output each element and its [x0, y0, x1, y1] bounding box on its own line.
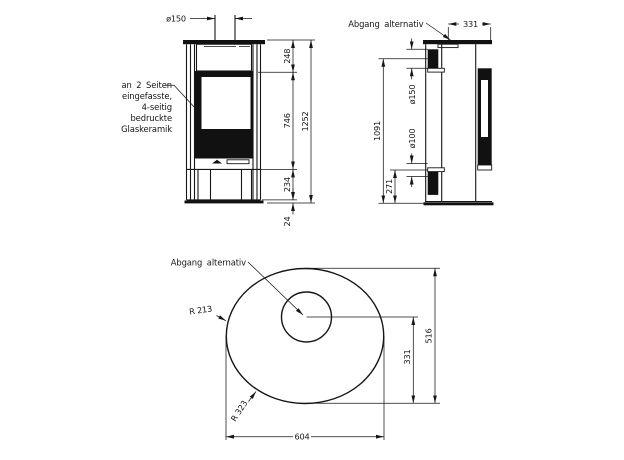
dim-text-1252: 1252 [300, 111, 310, 131]
side-outlet-label: Abgang alternativ [348, 19, 423, 29]
side-base-plinth [424, 202, 494, 205]
side-glass-band-cap [478, 165, 492, 170]
dim-text-248: 248 [282, 49, 292, 64]
side-top-plate [423, 40, 492, 44]
top-outlet-cap [438, 44, 458, 47]
dim-text-d150: ø150 [407, 85, 417, 105]
top-plate [183, 40, 265, 44]
ash-lip [227, 160, 249, 164]
glass-note-line-4: bedruckte [130, 113, 172, 123]
dim-text-746: 746 [282, 113, 292, 128]
dim-text-r323: R 323 [229, 399, 250, 424]
dim-text-604: 604 [294, 431, 309, 441]
dim-text-r213: R 213 [189, 303, 213, 316]
front-view: an 2 Seiten eingefasste, 4-seitig bedruc… [121, 14, 315, 227]
rear-air-inlet-step [428, 168, 445, 172]
top-outlet-label: Abgang alternativ [171, 258, 246, 268]
flue-diameter-text: ø150 [166, 14, 186, 24]
body-outline-ellipse [226, 269, 383, 404]
dim-text-d100: ø100 [407, 129, 417, 149]
dim-text-24: 24 [282, 216, 292, 226]
rear-air-inlet [428, 172, 439, 195]
rear-flue-outlet-step [428, 68, 445, 72]
dim-text-516: 516 [424, 328, 434, 343]
door-handle [212, 160, 222, 164]
side-outlet-leader-line [426, 23, 451, 40]
r323-leader-line [249, 392, 257, 402]
glass-note-line-5: Glaskeramik [121, 124, 172, 134]
stove-technical-drawing: an 2 Seiten eingefasste, 4-seitig bedruc… [0, 0, 624, 460]
r213-leader-line [217, 316, 227, 321]
top-outlet-leader-line [248, 262, 303, 315]
dim-text-331-side: 331 [463, 19, 478, 29]
side-view: Abgang alternativ 331 1091 ø150 ø100 271 [348, 19, 493, 205]
technical-drawing-page: an 2 Seiten eingefasste, 4-seitig bedruc… [0, 0, 624, 460]
side-glass-window [481, 80, 488, 137]
dim-text-271: 271 [384, 179, 394, 194]
dim-text-331-top: 331 [402, 349, 412, 364]
glass-window [202, 77, 251, 129]
upper-panel [197, 44, 252, 71]
top-view-dimensions: 604 331 516 [226, 268, 440, 441]
glass-note: an 2 Seiten eingefasste, 4-seitig bedruc… [121, 80, 197, 134]
dim-text-1091: 1091 [372, 121, 382, 141]
rear-flue-outlet [428, 49, 439, 68]
base-plinth [185, 201, 264, 204]
glass-note-line-3: 4-seitig [142, 102, 172, 112]
flue-collar [215, 15, 235, 40]
dim-text-234: 234 [282, 177, 292, 192]
glass-note-line-2: eingefasste, [122, 91, 172, 101]
side-view-dimensions: Abgang alternativ 331 1091 ø150 ø100 271 [348, 19, 490, 203]
top-view: Abgang alternativ R 213 R 323 604 331 51… [171, 258, 440, 442]
pedestal-panels [198, 169, 252, 200]
